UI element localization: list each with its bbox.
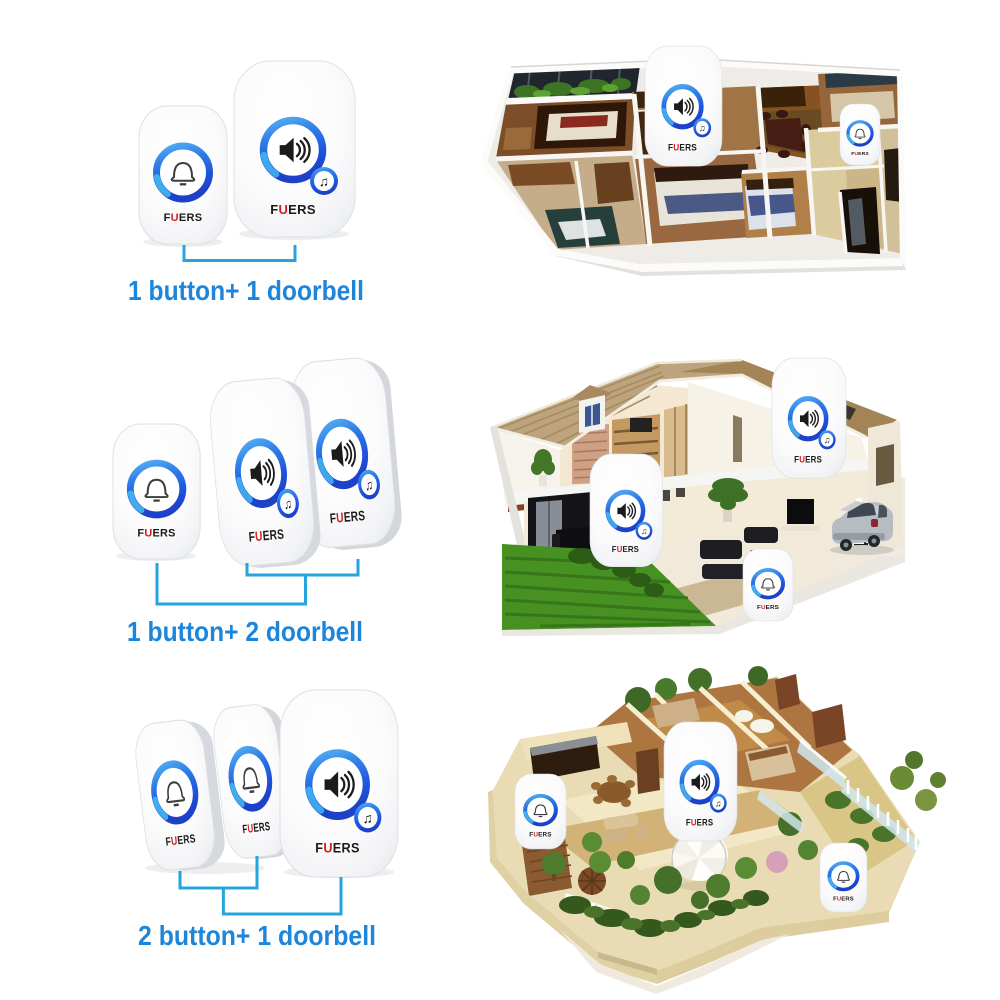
svg-text:1 button+ 1 doorbell: 1 button+ 1 doorbell [128,275,364,306]
svg-text:2 button+ 1 doorbell: 2 button+ 1 doorbell [138,920,376,951]
svg-text:1 button+ 2 doorbell: 1 button+ 2 doorbell [127,616,363,647]
